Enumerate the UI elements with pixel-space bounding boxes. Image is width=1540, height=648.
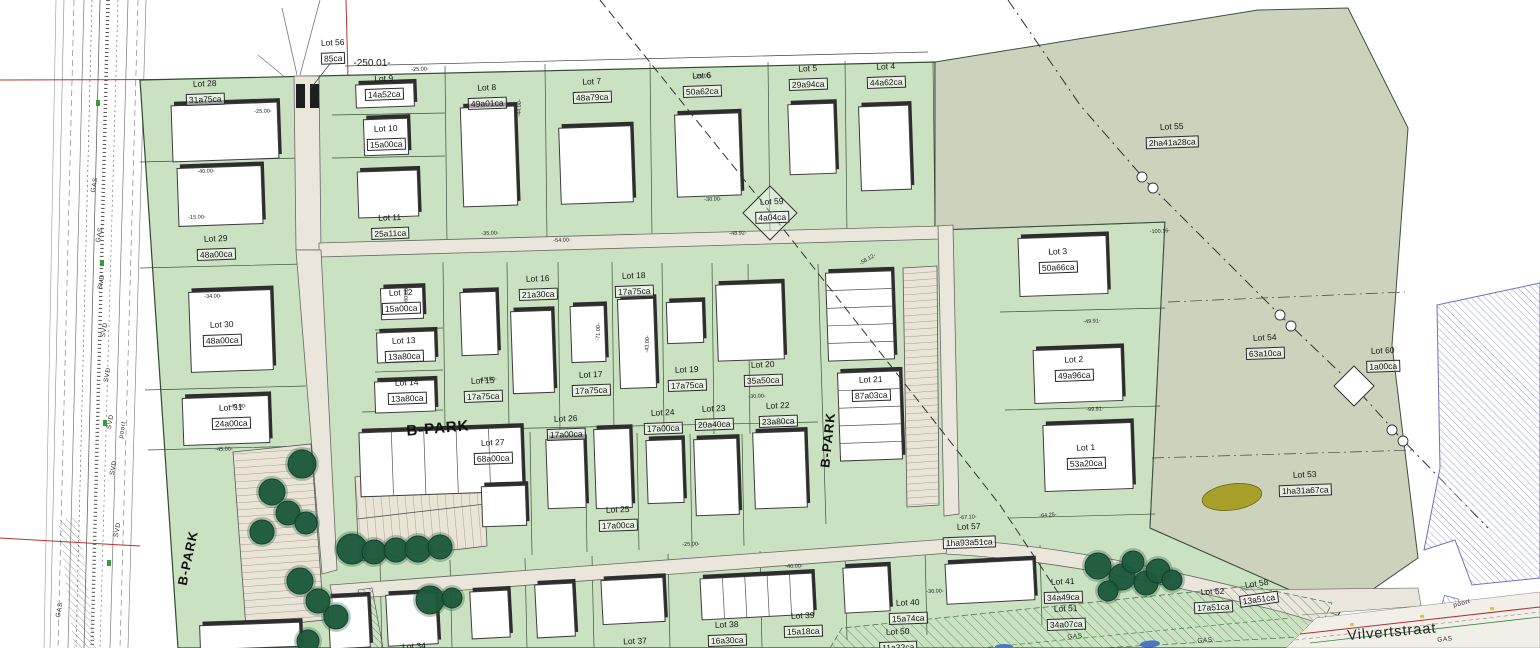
building xyxy=(674,109,744,197)
building xyxy=(363,114,411,156)
building xyxy=(825,267,897,361)
tree xyxy=(1159,567,1185,593)
tree xyxy=(439,585,465,611)
building xyxy=(171,98,282,162)
tree xyxy=(1095,578,1121,604)
tree xyxy=(285,447,319,481)
building xyxy=(510,306,557,393)
building xyxy=(546,434,590,508)
building xyxy=(376,327,438,363)
building xyxy=(1018,231,1111,296)
building xyxy=(601,573,668,624)
building xyxy=(1033,343,1126,403)
site-plan: B-PARK B-PARK B-PARK Vilvertstraat -250.… xyxy=(0,0,1540,648)
tree xyxy=(1119,548,1147,576)
building xyxy=(694,434,743,516)
building xyxy=(843,562,893,613)
building xyxy=(534,579,578,638)
building xyxy=(617,294,659,388)
tree xyxy=(425,532,455,562)
building xyxy=(357,166,422,218)
building xyxy=(470,586,514,639)
building xyxy=(182,391,273,445)
building xyxy=(355,79,417,108)
tree xyxy=(247,517,277,547)
building xyxy=(716,279,788,361)
building xyxy=(858,101,914,191)
building xyxy=(837,367,905,461)
building xyxy=(666,297,707,343)
existing-buildings xyxy=(1424,283,1540,648)
building xyxy=(481,481,530,527)
plan-drawing xyxy=(0,0,1540,648)
building xyxy=(177,161,266,226)
building xyxy=(593,424,635,508)
building xyxy=(945,556,1038,605)
building xyxy=(570,301,609,362)
building xyxy=(700,569,817,620)
building xyxy=(188,285,276,372)
parking-strip-east xyxy=(903,266,939,507)
building xyxy=(753,427,811,509)
building xyxy=(199,618,303,648)
building xyxy=(460,287,501,355)
tree xyxy=(292,509,320,537)
building xyxy=(460,102,521,207)
building xyxy=(788,99,840,175)
gate-block xyxy=(296,84,305,108)
tree xyxy=(321,602,351,632)
building xyxy=(646,435,687,503)
building xyxy=(380,283,426,320)
building xyxy=(1043,418,1136,491)
building xyxy=(374,376,438,413)
building xyxy=(559,122,637,205)
